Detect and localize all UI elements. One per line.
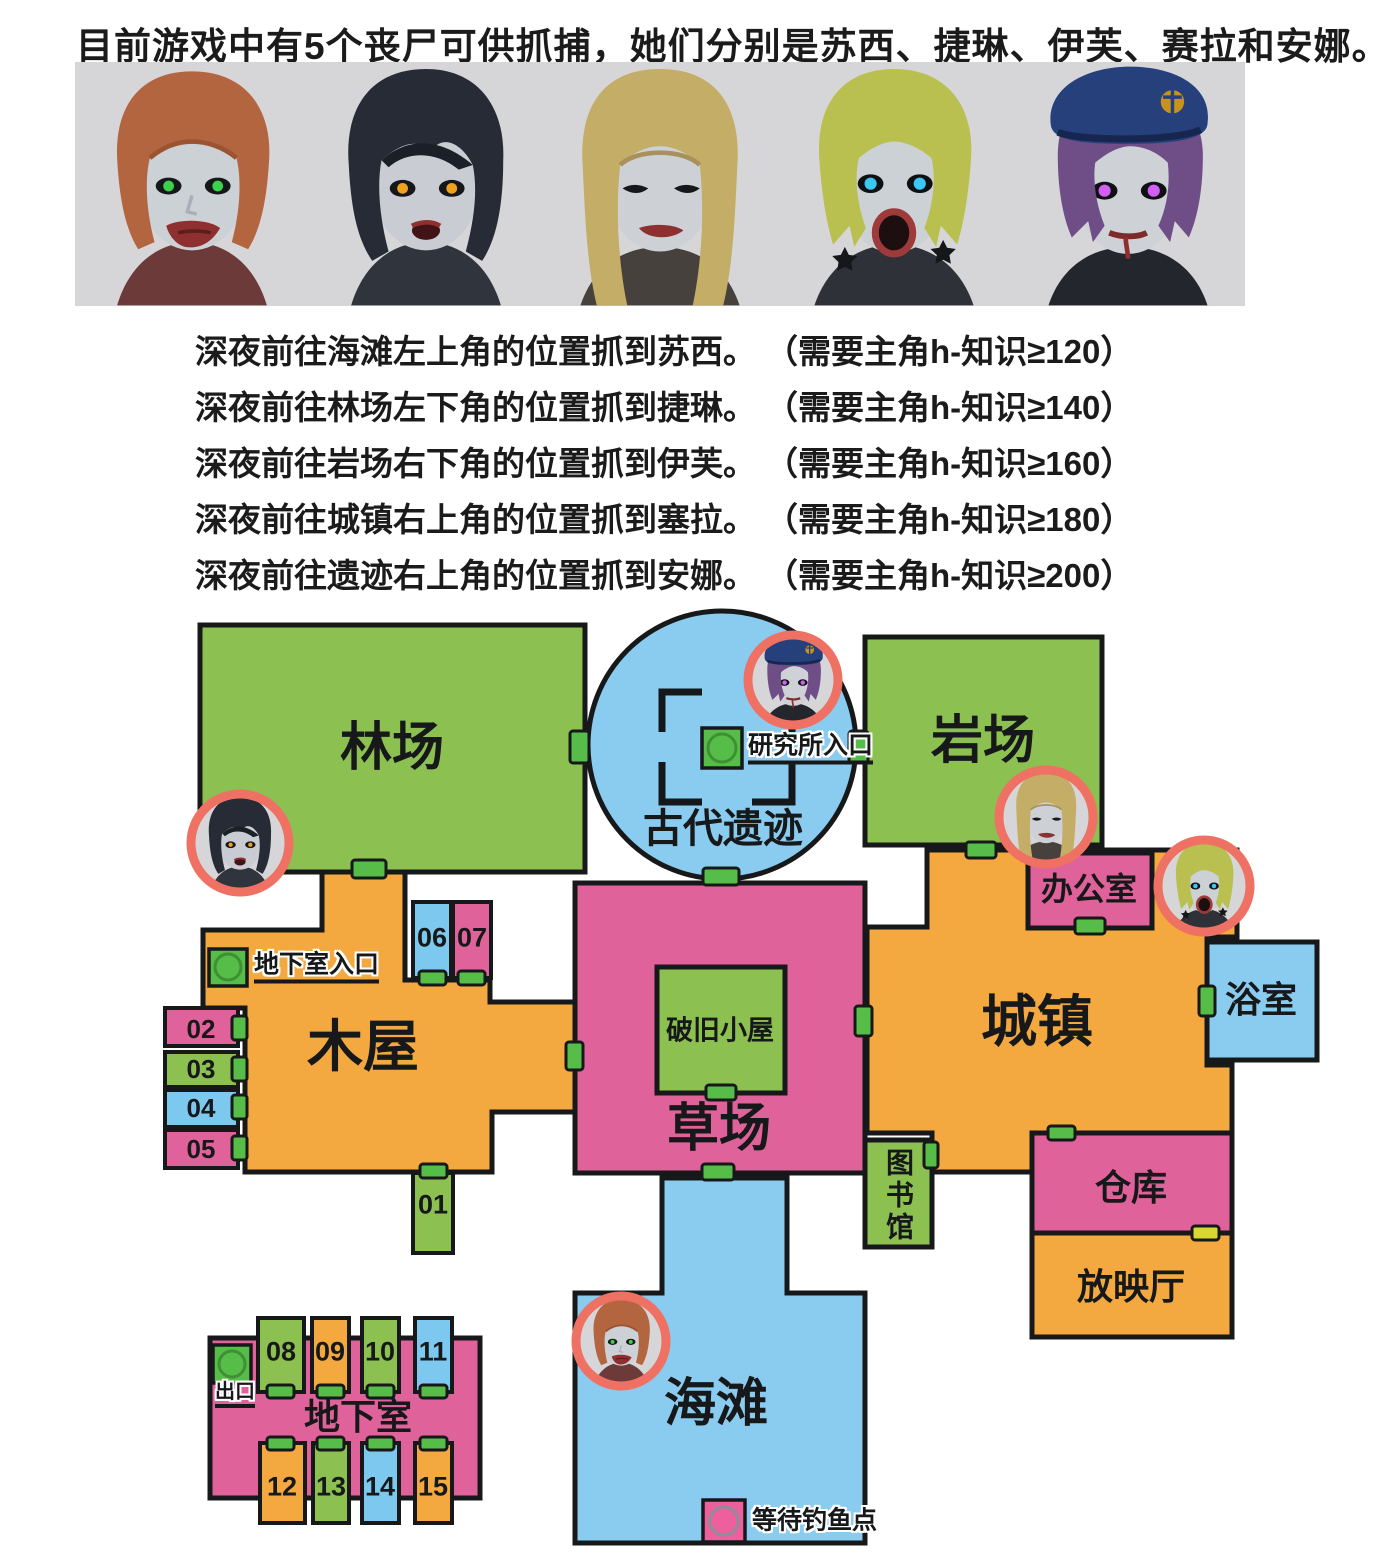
room-number-03: 03 — [187, 1056, 216, 1082]
door-yellow — [1192, 1226, 1219, 1240]
door — [1199, 986, 1215, 1016]
capture-spot-saila — [1158, 840, 1250, 932]
room-number-07: 07 — [457, 925, 487, 952]
door — [706, 1085, 736, 1100]
door — [924, 1142, 938, 1168]
door — [232, 1095, 247, 1119]
door — [966, 842, 996, 858]
label-quarry: 岩场 — [931, 715, 1035, 767]
room-number-05: 05 — [187, 1136, 216, 1162]
room-number-04: 04 — [187, 1095, 216, 1121]
door — [367, 1437, 394, 1450]
room-number-09: 09 — [315, 1339, 345, 1366]
label-bathroom: 浴室 — [1225, 982, 1297, 1018]
room-number-12: 12 — [267, 1474, 297, 1501]
label-warehouse: 仓库 — [1095, 1170, 1167, 1206]
door — [232, 1016, 247, 1040]
capture-spot-suxi — [576, 1296, 666, 1386]
door — [570, 731, 589, 763]
label-exit: 出口 — [215, 1382, 255, 1408]
room-number-01: 01 — [418, 1192, 448, 1219]
label-screening-room: 放映厅 — [1077, 1269, 1185, 1305]
door — [1075, 918, 1105, 934]
room-number-08: 08 — [266, 1339, 296, 1366]
label-ruins: 古代遗迹 — [643, 809, 803, 849]
room-number-02: 02 — [187, 1016, 216, 1042]
door — [703, 868, 739, 885]
room-number-13: 13 — [316, 1474, 346, 1501]
door — [1048, 1126, 1075, 1140]
label-beach: 海滩 — [664, 1378, 768, 1430]
room-number-14: 14 — [365, 1474, 395, 1501]
door — [458, 971, 485, 985]
research-entrance-icon — [702, 728, 742, 768]
capture-spot-anna — [748, 635, 838, 725]
page: 目前游戏中有5个丧尸可供抓捕，她们分别是苏西、捷琳、伊芙、赛拉和安娜。 深夜前往… — [0, 0, 1400, 1560]
door — [232, 1136, 247, 1160]
door — [267, 1437, 294, 1450]
door — [566, 1042, 583, 1070]
label-forest: 林场 — [340, 722, 444, 774]
door — [352, 860, 386, 878]
door — [855, 1006, 872, 1036]
label-grassland: 草场 — [667, 1103, 771, 1155]
door — [702, 1164, 734, 1180]
label-fishing-spot: 等待钓鱼点 — [752, 1509, 877, 1534]
label-library: 图书馆 — [884, 1148, 912, 1244]
exit-icon — [213, 1345, 251, 1383]
capture-spot-jielin — [191, 794, 289, 892]
door — [232, 1057, 247, 1081]
door — [317, 1437, 344, 1450]
fishing-spot-icon — [703, 1500, 745, 1542]
door — [419, 971, 446, 985]
label-office: 办公室 — [1041, 873, 1137, 905]
room-number-10: 10 — [365, 1339, 395, 1366]
label-town: 城镇 — [981, 994, 1093, 1050]
label-research-entrance: 研究所入口 — [748, 734, 873, 765]
door — [267, 1385, 294, 1398]
room-number-15: 15 — [418, 1474, 448, 1501]
basement-entrance-icon — [209, 949, 247, 986]
label-basement-entrance: 地下室入口 — [254, 953, 379, 984]
label-basement: 地下室 — [304, 1399, 412, 1435]
door — [420, 1164, 447, 1178]
map — [0, 0, 1400, 1560]
room-number-06: 06 — [417, 925, 447, 952]
capture-spot-yifu — [999, 770, 1093, 864]
label-cabin: 木屋 — [307, 1019, 419, 1075]
room-number-11: 11 — [419, 1339, 448, 1366]
door — [420, 1437, 447, 1450]
label-shabby-hut: 破旧小屋 — [666, 1018, 774, 1045]
door — [420, 1385, 447, 1398]
